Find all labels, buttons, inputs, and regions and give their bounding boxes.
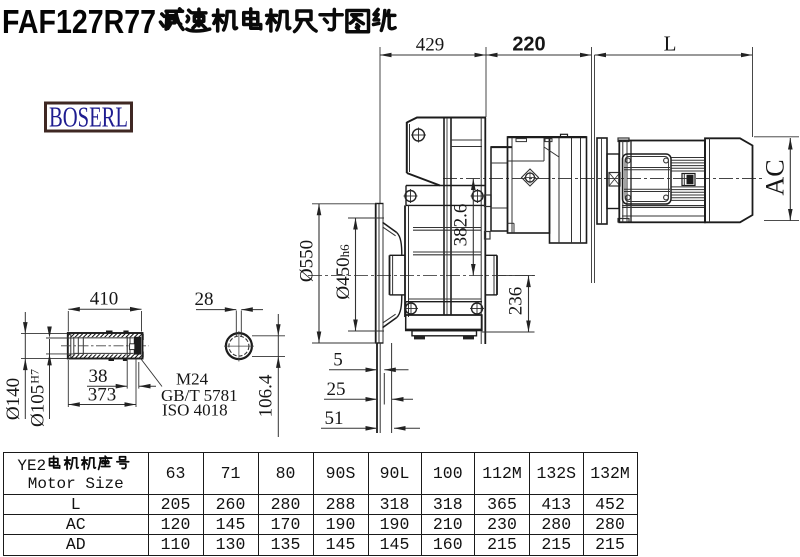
- svg-text:AC: AC: [761, 159, 790, 195]
- svg-text:236: 236: [506, 287, 527, 316]
- svg-text:382.6: 382.6: [451, 204, 472, 247]
- svg-text:BOSERL: BOSERL: [49, 102, 128, 134]
- svg-text:106.4: 106.4: [256, 374, 277, 417]
- svg-text:373: 373: [88, 385, 117, 406]
- svg-text:L: L: [664, 32, 677, 56]
- svg-text:25: 25: [327, 379, 346, 400]
- svg-text:5: 5: [333, 350, 343, 371]
- svg-text:51: 51: [325, 408, 344, 429]
- svg-text:FAF127R77: FAF127R77: [2, 3, 156, 40]
- svg-text:220: 220: [512, 34, 545, 56]
- svg-text:Ø105H7: Ø105H7: [28, 369, 49, 427]
- svg-text:Ø450h6: Ø450h6: [333, 244, 354, 300]
- svg-text:Ø140: Ø140: [3, 378, 24, 420]
- svg-text:ISO 4018: ISO 4018: [162, 401, 228, 420]
- svg-text:429: 429: [416, 35, 445, 56]
- svg-text:Ø550: Ø550: [297, 240, 318, 282]
- svg-text:28: 28: [195, 289, 214, 310]
- svg-text:410: 410: [90, 289, 119, 310]
